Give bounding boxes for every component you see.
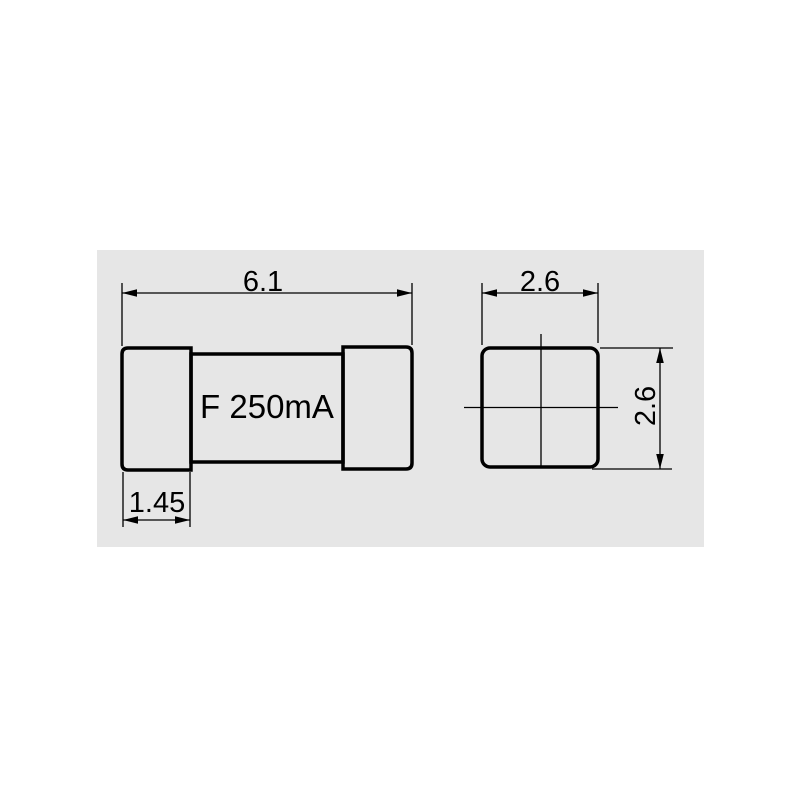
fuse-outline: F 250mA: [122, 347, 412, 470]
fuse-dimension-drawing: 6.1 F 250mA 1.45: [97, 250, 704, 547]
arrowhead-left-icon: [122, 289, 137, 297]
fuse-rating-label: F 250mA: [200, 388, 334, 425]
fuse-right-cap: [343, 347, 412, 469]
height-dimension: 2.6: [592, 348, 673, 469]
drawing-panel: 6.1 F 250mA 1.45: [97, 250, 704, 547]
cap-length-label: 1.45: [129, 487, 185, 519]
overall-length-label: 6.1: [243, 266, 283, 298]
end-view: 2.6 2.6: [464, 266, 673, 469]
arrowhead-up-icon: [656, 348, 664, 363]
height-label: 2.6: [630, 386, 662, 426]
arrowhead-right-icon: [397, 289, 412, 297]
width-dimension: 2.6: [482, 266, 598, 345]
overall-length-dimension: 6.1: [122, 266, 412, 346]
arrowhead-right-icon: [583, 289, 598, 297]
width-label: 2.6: [520, 266, 560, 298]
fuse-left-cap: [122, 348, 191, 470]
arrowhead-down-icon: [656, 454, 664, 469]
side-view: 6.1 F 250mA 1.45: [122, 266, 412, 527]
cap-length-dimension: 1.45: [123, 472, 190, 527]
page: 6.1 F 250mA 1.45: [0, 0, 800, 800]
arrowhead-left-icon: [482, 289, 497, 297]
